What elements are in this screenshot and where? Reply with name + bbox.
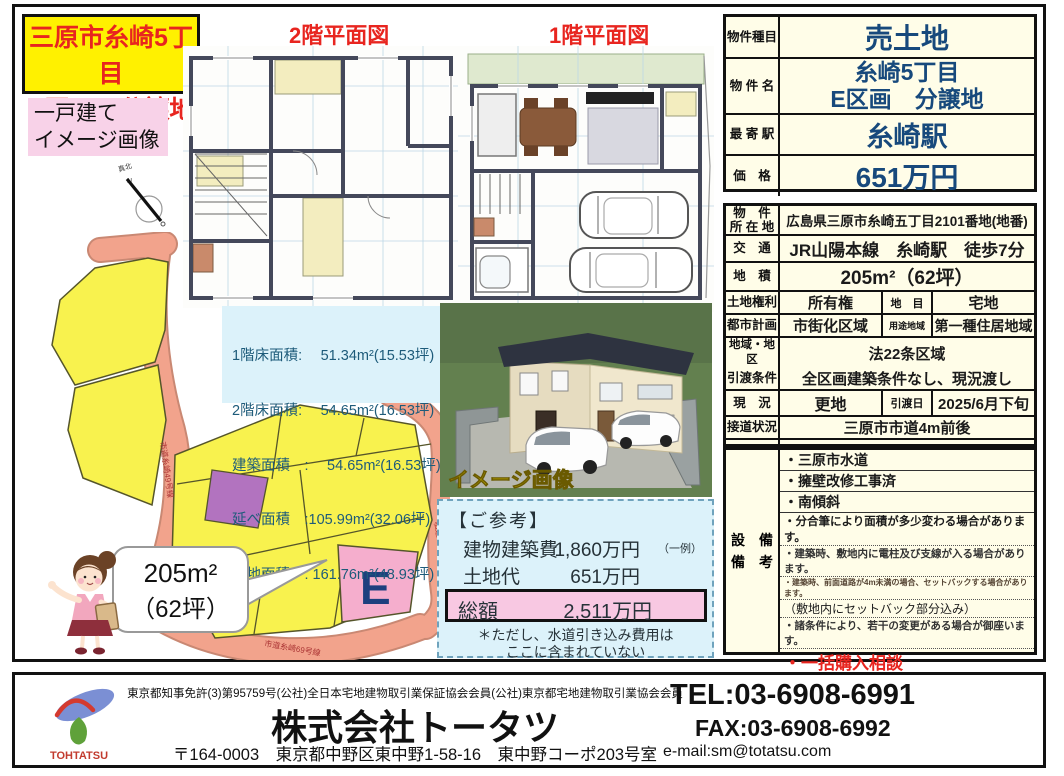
- property-summary-table: 物件種目 売土地 物 件 名 糸崎5丁目 E区画 分譲地 最 寄 駅 糸崎駅 価…: [723, 14, 1037, 192]
- image-label-line1: 一戸建て: [34, 100, 162, 127]
- title-box: 三原市糸崎5丁目 E区画 分譲地: [22, 14, 200, 94]
- table-row-district-conditions: 地域・地区 法22条区域 引渡条件 全区画建築条件なし、現況渡し: [726, 336, 1034, 389]
- image-label-line2: イメージ画像: [34, 127, 162, 154]
- house-image-caption: イメージ画像: [448, 469, 575, 492]
- building-cost-value: 1,860万円: [554, 535, 640, 562]
- remark-item: （敷地内にセットバック部分込み）: [780, 599, 1034, 617]
- table-row-price: 価 格 651万円: [726, 154, 1034, 196]
- remark-item-bulk-purchase: ・一括購入相談: [780, 648, 1034, 674]
- equipment-remarks-table: 設 備 備 考 ・三原市水道 ・擁壁改修工事済 ・南傾斜 ・分合筆により面積が多…: [723, 447, 1037, 655]
- land-cost-label: 土地代: [463, 562, 520, 589]
- title-line1: 三原市糸崎5丁目: [25, 20, 197, 92]
- total-label: 総額: [458, 595, 498, 624]
- company-logo: TOHTATSU: [29, 683, 129, 765]
- car-top-view-1: [580, 192, 688, 238]
- reference-cost-box: 【ご参考】 建物建築費 1,860万円 （一例） 土地代 651万円 総額 2,…: [437, 499, 714, 658]
- detached-house-image-label: 一戸建て イメージ画像: [28, 98, 168, 156]
- table-row-station: 最 寄 駅 糸崎駅: [726, 113, 1034, 154]
- agent-character-illustration: [35, 548, 147, 656]
- car-sedan: [612, 411, 680, 449]
- remark-item: ・諸条件により、若干の変更がある場合が御座います。: [780, 617, 1034, 648]
- table-row-access: 交 通 JR山陽本線 糸崎駅 徒歩7分: [726, 234, 1034, 261]
- phone-number: TEL:03-6908-6991: [670, 679, 915, 712]
- floorplan-1f-drawing: [458, 46, 714, 312]
- table-row-city-planning: 都市計画 市街化区域 用途地域 第一種住居地域: [726, 313, 1034, 336]
- total-value: 2,511万円: [563, 595, 652, 624]
- building-cost-note: （一例）: [658, 540, 702, 556]
- remark-item: ・建築時、敷地内に電柱及び支線が入る場合があります。: [780, 545, 1034, 576]
- speech-bubble-tail: [243, 548, 333, 618]
- compass-north-arrow: 真北 N: [105, 163, 185, 233]
- car-top-view-2: [570, 248, 692, 292]
- remark-item: ・擁壁改修工事済: [780, 470, 1034, 491]
- property-detail-table: 物 件 所 在 地 広島県三原市糸崎五丁目2101番地(地番) 交 通 JR山陽…: [723, 203, 1037, 447]
- company-footer: TOHTATSU 東京都知事免許(3)第95759号(公社)全日本宅地建物取引業…: [12, 672, 1046, 768]
- remark-item: ・三原市水道: [780, 450, 1034, 470]
- remark-item: ・分合筆により面積が多少変わる場合があります。: [780, 512, 1034, 545]
- table-row-empty: [726, 438, 1034, 444]
- company-address: 〒164-0003 東京都中野区東中野1-58-16 東中野コーポ203号室: [125, 741, 705, 765]
- table-row-current-state: 現 況 更地 引渡日 2025/6月下旬: [726, 389, 1034, 415]
- table-row-rights: 土地権利 所有権 地 目 宅地: [726, 290, 1034, 313]
- logo-text: TOHTATSU: [50, 750, 108, 762]
- land-cost-value: 651万円: [570, 562, 640, 589]
- land-cost-row: 土地代 651万円: [449, 560, 702, 587]
- house-render-image: イメージ画像: [440, 303, 712, 497]
- remark-item: ・建築時、前面道路が4m未満の場合、セットバックする場合があります。: [780, 576, 1034, 599]
- table-row-name: 物 件 名 糸崎5丁目 E区画 分譲地: [726, 57, 1034, 113]
- floor-area-summary: 1階床面積: 51.34m²(15.53坪) 2階床面積: 54.65m²(16…: [222, 306, 444, 403]
- area-line-4: 延べ面積 :105.99m²(32.06坪): [232, 511, 444, 529]
- fax-number: FAX:03-6908-6992: [695, 715, 891, 742]
- area-line-2: 2階床面積: 54.65m²(16.53坪): [232, 402, 444, 420]
- table-row-location: 物 件 所 在 地 広島県三原市糸崎五丁目2101番地(地番): [726, 206, 1034, 234]
- compass-label-text: 真北: [117, 163, 133, 174]
- building-cost-row: 建物建築費 1,860万円 （一例）: [449, 533, 702, 560]
- flyer-page: 三原市糸崎5丁目 E区画 分譲地 一戸建て イメージ画像 2階平面図 1階平面図: [0, 0, 1064, 776]
- table-row-type: 物件種目 売土地: [726, 17, 1034, 57]
- total-cost-row: 総額 2,511万円: [445, 589, 707, 622]
- area-line-3: 建築面積 : 54.65m²(16.53坪): [232, 457, 444, 475]
- table-row-land-area: 地 積 205m²（62坪）: [726, 261, 1034, 290]
- table-row-road-contact: 接道状況 三原市市道4m前後: [726, 415, 1034, 438]
- building-cost-label: 建物建築費: [463, 535, 558, 562]
- reference-note: ＊ただし、水道引き込み費用は ここに含まれていない: [439, 627, 712, 660]
- map-parcel-lower-left: [68, 365, 166, 505]
- email-address: e-mail:sm@totatsu.com: [663, 743, 831, 761]
- remark-item: ・南傾斜: [780, 491, 1034, 512]
- reference-heading: 【ご参考】: [449, 507, 702, 533]
- area-line-1: 1階床面積: 51.34m²(15.53坪): [232, 347, 444, 365]
